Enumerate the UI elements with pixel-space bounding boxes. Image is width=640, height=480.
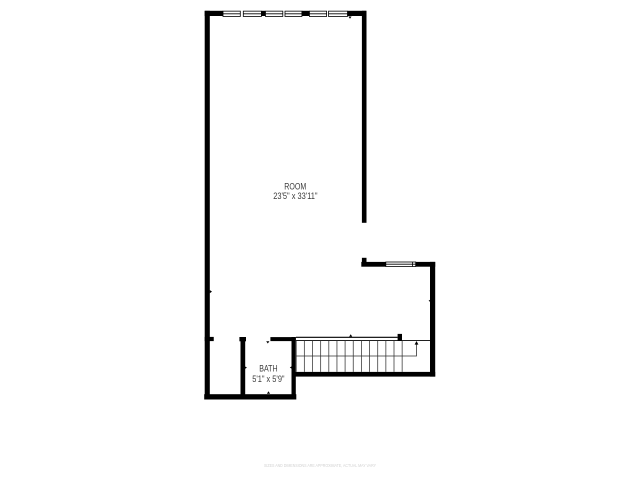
svg-text:23'5" x 33'11": 23'5" x 33'11" xyxy=(273,191,317,201)
svg-text:5'1" x 5'9": 5'1" x 5'9" xyxy=(252,374,284,384)
svg-text:SIZES AND DIMENSIONS ARE APPRO: SIZES AND DIMENSIONS ARE APPROXIMATE, AC… xyxy=(264,463,376,468)
svg-text:BATH: BATH xyxy=(259,363,277,373)
